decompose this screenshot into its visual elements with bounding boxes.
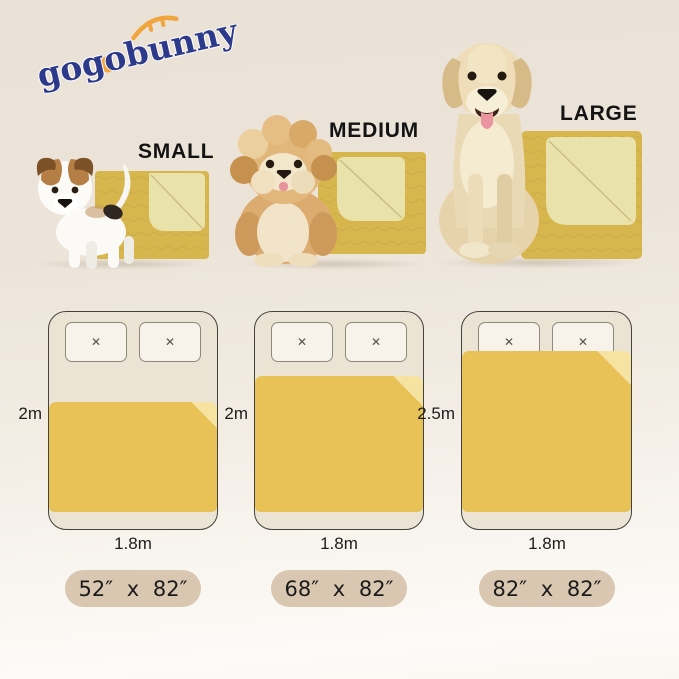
pillow-x-icon: ✕ xyxy=(91,335,101,349)
brand-logo: gogobunny xyxy=(31,0,251,115)
dimensions-pill-large: 82″ x 82″ xyxy=(479,570,615,607)
size-label-small: SMALL xyxy=(138,140,214,164)
pillow-x-icon: ✕ xyxy=(371,335,381,349)
pillow-x-icon: ✕ xyxy=(297,335,307,349)
small-dog-illustration xyxy=(25,146,143,272)
bed-width-label-small: 1.8m xyxy=(103,534,163,554)
dimensions-pill-small: 52″ x 82″ xyxy=(65,570,201,607)
bed-diagram-large: ✕ ✕ xyxy=(461,311,632,530)
size-label-medium: MEDIUM xyxy=(329,119,419,143)
blanket-on-bed xyxy=(49,402,217,512)
bed-width-label-medium: 1.8m xyxy=(309,534,369,554)
pillow: ✕ xyxy=(345,322,407,362)
pillow-x-icon: ✕ xyxy=(578,335,588,349)
bed-diagram-small: ✕ ✕ xyxy=(48,311,218,530)
pillow: ✕ xyxy=(139,322,201,362)
bed-length-label-small: 2m xyxy=(10,404,42,424)
pillow-x-icon: ✕ xyxy=(165,335,175,349)
pillow: ✕ xyxy=(271,322,333,362)
pillow: ✕ xyxy=(65,322,127,362)
bed-length-label-medium: 2m xyxy=(216,404,248,424)
blanket-on-bed xyxy=(255,376,423,512)
dimensions-pill-medium: 68″ x 82″ xyxy=(271,570,407,607)
bed-width-label-large: 1.8m xyxy=(517,534,577,554)
size-label-large: LARGE xyxy=(560,102,638,126)
large-dog-illustration xyxy=(423,22,553,268)
product-infographic: gogobunny SMALL xyxy=(0,0,679,679)
bed-diagram-medium: ✕ ✕ xyxy=(254,311,424,530)
blanket-on-bed xyxy=(462,351,631,512)
bed-length-label-large: 2.5m xyxy=(412,404,455,424)
pillow-x-icon: ✕ xyxy=(504,335,514,349)
